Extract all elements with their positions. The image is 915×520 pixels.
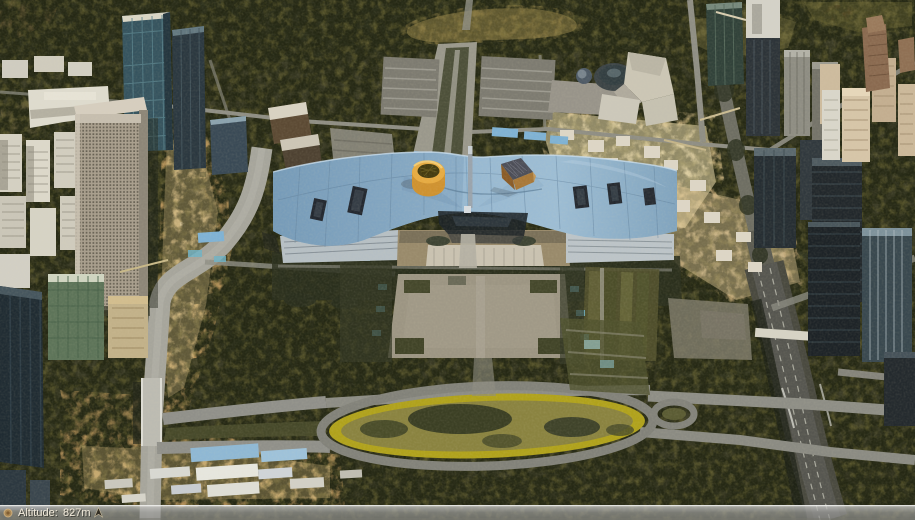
svg-text:Altitude:: Altitude:	[18, 507, 58, 519]
svg-text:827m: 827m	[63, 507, 91, 519]
